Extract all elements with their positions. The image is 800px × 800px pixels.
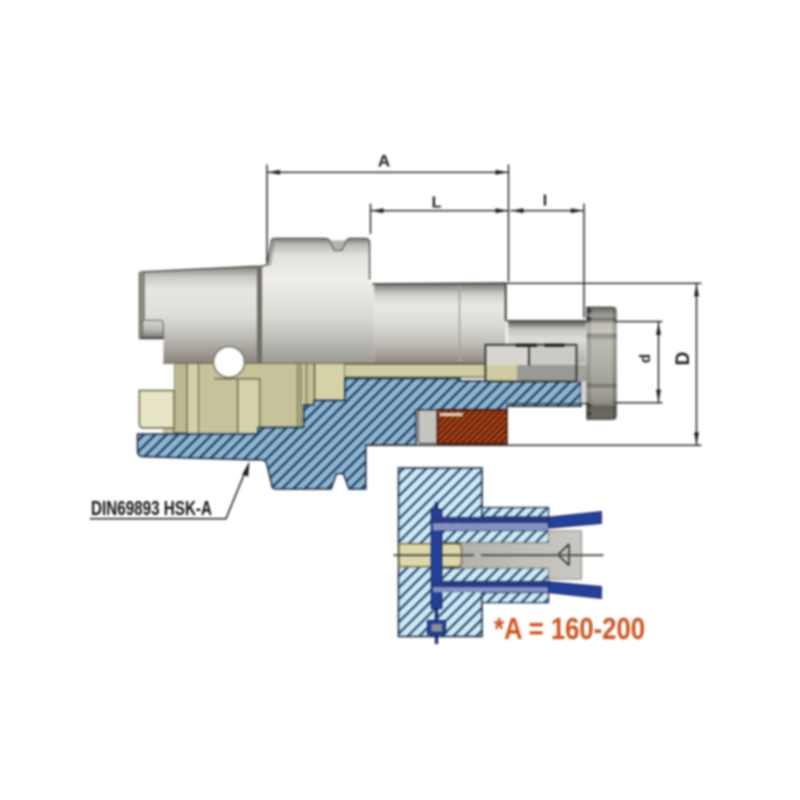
svg-text:D: D [673, 352, 694, 366]
svg-text:L: L [432, 195, 442, 212]
svg-text:I: I [543, 193, 547, 210]
svg-text:*A = 160-200: *A = 160-200 [494, 611, 645, 646]
svg-text:d: d [637, 354, 654, 363]
svg-text:A: A [378, 152, 390, 171]
svg-text:DIN69893 HSK-A: DIN69893 HSK-A [91, 497, 212, 520]
